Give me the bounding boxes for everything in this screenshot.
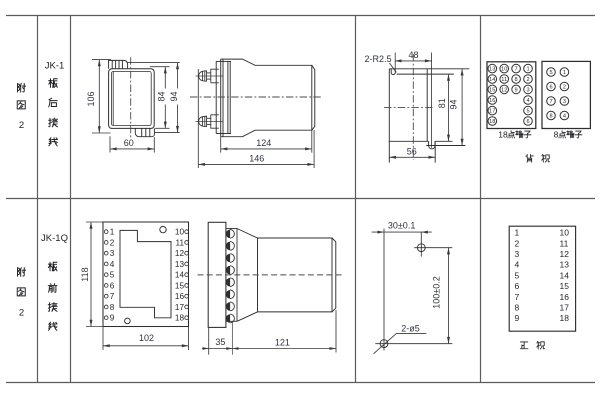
- svg-text:JK-1Q: JK-1Q: [41, 233, 68, 244]
- svg-text:16: 16: [560, 292, 570, 302]
- svg-text:146: 146: [249, 154, 264, 164]
- svg-text:4: 4: [515, 260, 520, 270]
- svg-text:1: 1: [563, 70, 566, 76]
- svg-text:81: 81: [437, 98, 447, 108]
- svg-text:2: 2: [19, 120, 24, 131]
- svg-text:94: 94: [448, 99, 458, 109]
- svg-text:3: 3: [515, 249, 520, 259]
- svg-text:2: 2: [110, 238, 115, 247]
- svg-text:94: 94: [169, 91, 179, 101]
- svg-text:2-ø5: 2-ø5: [401, 324, 420, 334]
- svg-text:14: 14: [175, 271, 185, 280]
- svg-text:10: 10: [560, 228, 570, 238]
- svg-text:4: 4: [110, 260, 115, 269]
- svg-text:7: 7: [515, 292, 520, 302]
- svg-text:5: 5: [549, 70, 552, 76]
- svg-text:15: 15: [489, 87, 495, 93]
- svg-text:84: 84: [157, 91, 167, 101]
- svg-text:3: 3: [110, 249, 115, 258]
- svg-text:11: 11: [176, 238, 185, 247]
- svg-text:18: 18: [489, 119, 495, 125]
- svg-text:8: 8: [549, 114, 552, 120]
- svg-text:14: 14: [489, 77, 495, 83]
- svg-text:3: 3: [526, 87, 529, 93]
- svg-text:12: 12: [501, 87, 507, 93]
- svg-text:11: 11: [560, 238, 569, 248]
- svg-text:9: 9: [110, 314, 115, 323]
- svg-text:1: 1: [110, 228, 115, 237]
- svg-text:100±0.2: 100±0.2: [432, 276, 442, 308]
- svg-text:8: 8: [554, 130, 559, 140]
- svg-text:10: 10: [501, 67, 507, 73]
- svg-text:14: 14: [560, 270, 570, 280]
- svg-text:35: 35: [215, 337, 225, 347]
- svg-text:15: 15: [560, 281, 570, 291]
- svg-text:13: 13: [560, 260, 570, 270]
- svg-text:15: 15: [175, 281, 185, 290]
- svg-text:13: 13: [175, 260, 185, 269]
- svg-text:2-R2.5: 2-R2.5: [364, 54, 391, 64]
- svg-text:6: 6: [526, 119, 529, 125]
- svg-text:4: 4: [526, 98, 529, 104]
- svg-text:60: 60: [124, 138, 134, 148]
- svg-text:106: 106: [86, 91, 96, 106]
- svg-text:8: 8: [515, 77, 518, 83]
- svg-text:6: 6: [515, 281, 520, 291]
- svg-text:16: 16: [175, 292, 185, 301]
- svg-text:13: 13: [489, 67, 495, 73]
- svg-text:18: 18: [175, 314, 185, 323]
- svg-text:48: 48: [408, 50, 418, 60]
- svg-text:9: 9: [515, 313, 520, 323]
- svg-text:17: 17: [175, 303, 185, 312]
- svg-text:11: 11: [501, 77, 507, 83]
- svg-text:12: 12: [175, 249, 185, 258]
- svg-text:7: 7: [110, 292, 115, 301]
- svg-text:1: 1: [515, 228, 520, 238]
- svg-text:30±0.1: 30±0.1: [388, 220, 415, 230]
- svg-text:9: 9: [515, 87, 518, 93]
- svg-text:5: 5: [110, 271, 115, 280]
- svg-text:7: 7: [515, 67, 518, 73]
- svg-text:8: 8: [515, 303, 520, 313]
- svg-text:JK-1: JK-1: [45, 61, 65, 72]
- svg-text:17: 17: [489, 109, 495, 115]
- svg-text:6: 6: [110, 281, 115, 290]
- svg-text:2: 2: [19, 307, 24, 318]
- svg-text:16: 16: [489, 98, 495, 104]
- svg-text:102: 102: [139, 333, 154, 343]
- svg-text:121: 121: [275, 338, 290, 348]
- svg-text:124: 124: [256, 138, 271, 148]
- svg-text:1: 1: [526, 67, 529, 73]
- svg-text:5: 5: [515, 270, 520, 280]
- svg-text:3: 3: [563, 99, 566, 105]
- svg-text:6: 6: [549, 85, 552, 91]
- svg-text:2: 2: [563, 85, 566, 91]
- svg-text:8: 8: [110, 303, 115, 312]
- svg-text:5: 5: [526, 109, 529, 115]
- svg-text:118: 118: [80, 267, 90, 281]
- svg-text:10: 10: [175, 228, 185, 237]
- svg-text:4: 4: [563, 114, 566, 120]
- svg-text:12: 12: [560, 249, 570, 259]
- svg-text:18: 18: [498, 130, 508, 140]
- svg-text:2: 2: [526, 77, 529, 83]
- svg-text:7: 7: [549, 99, 552, 105]
- svg-text:17: 17: [560, 303, 570, 313]
- svg-text:18: 18: [560, 313, 570, 323]
- svg-text:56: 56: [407, 147, 417, 157]
- svg-text:2: 2: [515, 238, 520, 248]
